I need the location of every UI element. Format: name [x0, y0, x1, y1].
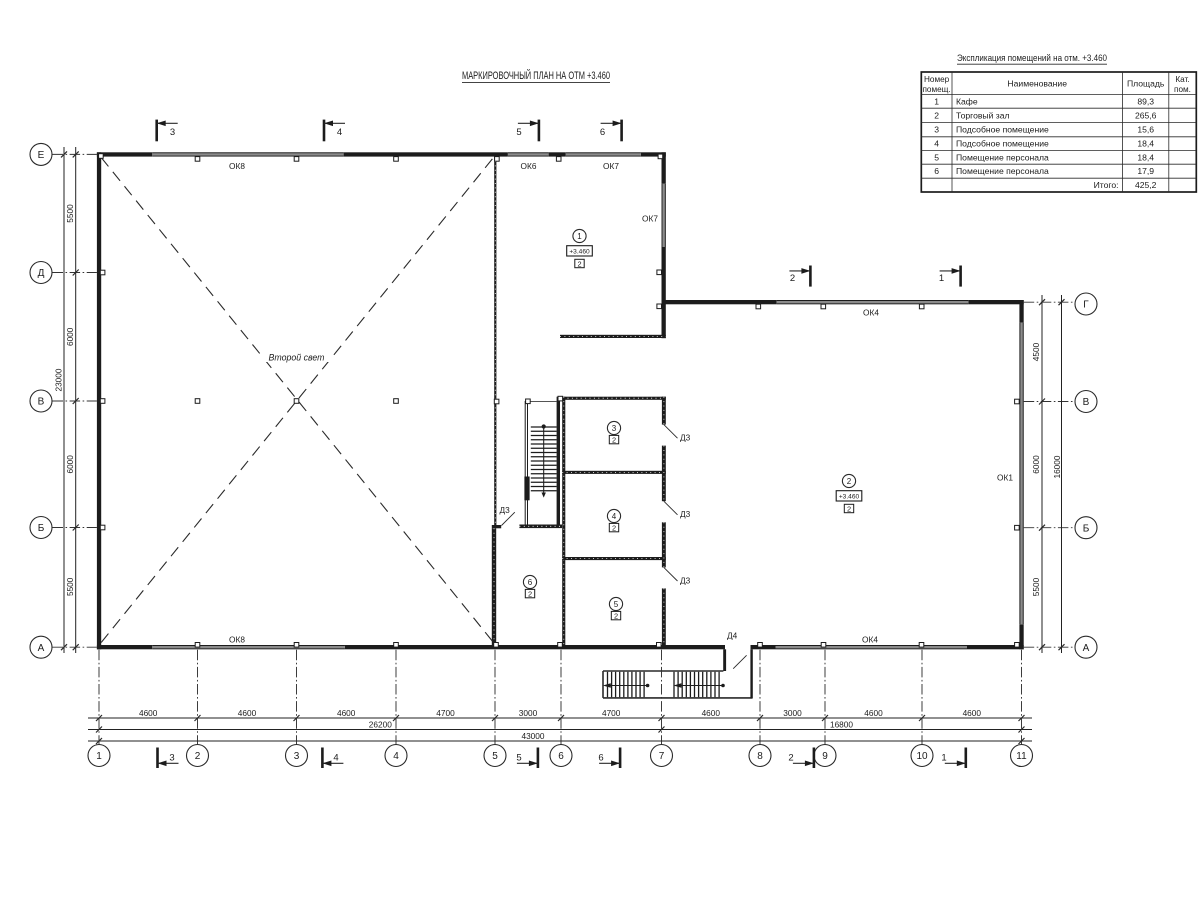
svg-text:Д3: Д3 [680, 509, 691, 519]
svg-text:23000: 23000 [53, 368, 63, 391]
svg-text:3: 3 [170, 127, 175, 138]
svg-text:6: 6 [598, 753, 603, 764]
svg-text:Д4: Д4 [727, 631, 738, 641]
svg-text:2: 2 [934, 110, 939, 120]
svg-text:4600: 4600 [238, 708, 257, 718]
svg-text:4600: 4600 [702, 708, 721, 718]
svg-text:26200: 26200 [369, 720, 392, 730]
svg-text:10: 10 [916, 751, 928, 762]
svg-text:2: 2 [847, 477, 852, 486]
svg-text:Г: Г [1083, 300, 1089, 311]
svg-text:ОК1: ОК1 [997, 473, 1013, 483]
svg-text:6000: 6000 [1031, 455, 1041, 474]
svg-text:4600: 4600 [963, 708, 982, 718]
svg-text:6: 6 [600, 127, 605, 138]
svg-text:11: 11 [1016, 751, 1027, 762]
svg-text:Кафе: Кафе [956, 96, 978, 106]
svg-text:4600: 4600 [337, 708, 356, 718]
svg-text:ОК8: ОК8 [229, 161, 245, 171]
svg-text:Второй свет: Второй свет [269, 353, 325, 363]
svg-text:16800: 16800 [830, 720, 853, 730]
svg-text:3: 3 [169, 753, 174, 764]
svg-text:8: 8 [757, 751, 763, 762]
svg-text:5: 5 [614, 600, 619, 609]
svg-text:Экспликация помещений на отм.: Экспликация помещений на отм. +3.460 [957, 53, 1107, 63]
svg-text:2: 2 [195, 751, 201, 762]
svg-text:1: 1 [934, 96, 939, 106]
svg-text:МАРКИРОВОЧНЫЙ ПЛАН НА ОТМ +3.4: МАРКИРОВОЧНЫЙ ПЛАН НА ОТМ +3.460 [462, 69, 610, 82]
svg-text:Д3: Д3 [500, 505, 511, 515]
svg-text:3: 3 [934, 125, 939, 135]
svg-text:4500: 4500 [1031, 342, 1041, 361]
svg-text:1: 1 [96, 751, 102, 762]
svg-text:ОК8: ОК8 [229, 635, 245, 645]
svg-text:18,4: 18,4 [1137, 152, 1154, 162]
svg-text:5: 5 [934, 152, 939, 162]
svg-text:3000: 3000 [519, 708, 538, 718]
svg-text:4600: 4600 [139, 708, 158, 718]
svg-text:4600: 4600 [864, 708, 883, 718]
svg-text:1: 1 [941, 753, 946, 764]
svg-text:4: 4 [934, 139, 939, 149]
svg-text:Д3: Д3 [680, 576, 691, 586]
svg-text:1: 1 [577, 232, 582, 241]
svg-text:Подсобное помещение: Подсобное помещение [956, 139, 1049, 149]
svg-text:4: 4 [337, 127, 342, 138]
svg-text:2: 2 [788, 753, 793, 764]
svg-text:3: 3 [612, 424, 617, 433]
svg-text:1: 1 [939, 273, 944, 284]
svg-text:Помещение персонала: Помещение персонала [956, 152, 1049, 162]
svg-text:15,6: 15,6 [1137, 125, 1154, 135]
svg-text:265,6: 265,6 [1135, 110, 1157, 120]
svg-text:+3.460: +3.460 [839, 494, 860, 501]
svg-text:Д: Д [38, 268, 45, 279]
svg-text:4: 4 [333, 753, 338, 764]
svg-text:6: 6 [558, 751, 564, 762]
svg-text:6000: 6000 [65, 455, 75, 474]
svg-text:ОК4: ОК4 [863, 308, 879, 318]
svg-text:6: 6 [934, 166, 939, 176]
svg-text:Торговый зал: Торговый зал [956, 110, 1010, 120]
svg-text:4: 4 [612, 512, 617, 521]
svg-text:5: 5 [516, 753, 521, 764]
svg-text:4: 4 [393, 751, 399, 762]
svg-text:А: А [38, 643, 45, 654]
svg-text:5500: 5500 [1031, 577, 1041, 596]
svg-text:ОК6: ОК6 [521, 161, 537, 171]
svg-text:5500: 5500 [65, 577, 75, 596]
svg-text:ОК7: ОК7 [642, 214, 658, 224]
svg-text:43000: 43000 [521, 731, 544, 741]
svg-text:В: В [1083, 397, 1090, 408]
svg-text:2: 2 [612, 523, 616, 532]
svg-text:Итого:: Итого: [1094, 180, 1119, 190]
svg-text:6: 6 [528, 578, 533, 587]
svg-text:Кат.: Кат. [1175, 75, 1189, 84]
svg-text:А: А [1083, 643, 1090, 654]
svg-text:Наименование: Наименование [1007, 79, 1067, 89]
svg-text:89,3: 89,3 [1137, 96, 1154, 106]
svg-text:В: В [38, 397, 45, 408]
svg-text:3: 3 [294, 751, 300, 762]
svg-text:Д3: Д3 [680, 433, 691, 443]
svg-text:помещ.: помещ. [923, 85, 951, 94]
svg-text:2: 2 [577, 259, 581, 268]
svg-text:Б: Б [1083, 523, 1090, 534]
svg-text:2: 2 [612, 435, 616, 444]
svg-text:+3.460: +3.460 [569, 249, 590, 256]
svg-text:2: 2 [847, 504, 851, 513]
svg-text:пом.: пом. [1174, 85, 1191, 94]
svg-text:2: 2 [528, 589, 532, 598]
svg-text:2: 2 [790, 273, 795, 284]
svg-text:17,9: 17,9 [1137, 166, 1154, 176]
svg-text:5500: 5500 [65, 204, 75, 223]
svg-text:4700: 4700 [602, 708, 621, 718]
svg-text:Б: Б [38, 523, 45, 534]
svg-text:ОК7: ОК7 [603, 161, 619, 171]
svg-text:ОК4: ОК4 [862, 635, 878, 645]
svg-text:Помещение персонала: Помещение персонала [956, 166, 1049, 176]
svg-text:4700: 4700 [436, 708, 455, 718]
svg-text:6000: 6000 [65, 327, 75, 346]
svg-text:Подсобное помещение: Подсобное помещение [956, 125, 1049, 135]
svg-text:18,4: 18,4 [1137, 139, 1154, 149]
svg-text:Площадь: Площадь [1127, 79, 1165, 89]
svg-text:Номер: Номер [924, 75, 950, 84]
svg-text:5: 5 [516, 127, 521, 138]
svg-text:Е: Е [38, 150, 45, 161]
svg-text:9: 9 [822, 751, 828, 762]
svg-text:5: 5 [492, 751, 498, 762]
svg-text:3000: 3000 [783, 708, 802, 718]
svg-text:2: 2 [614, 611, 618, 620]
svg-text:425,2: 425,2 [1135, 180, 1157, 190]
svg-text:16000: 16000 [1052, 455, 1062, 478]
svg-text:7: 7 [659, 751, 665, 762]
